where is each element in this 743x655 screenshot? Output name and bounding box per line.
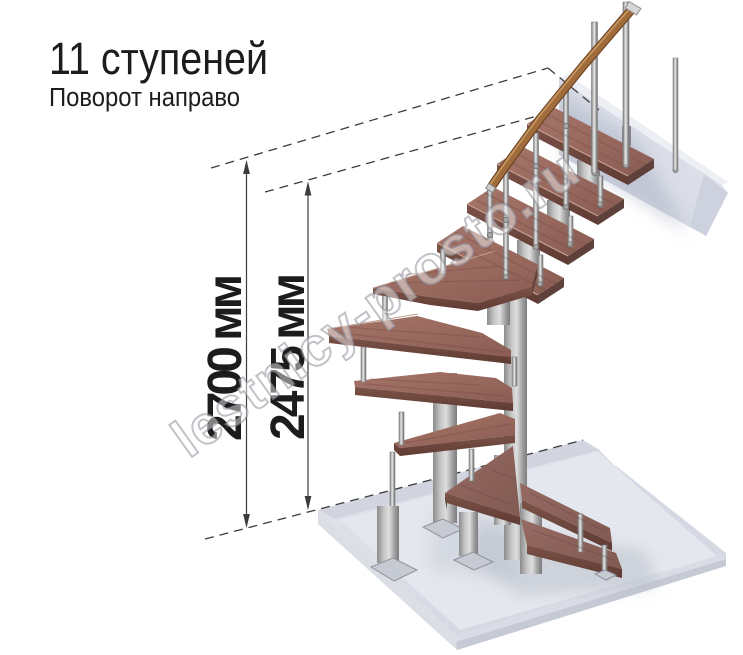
svg-text:Поворот направо: Поворот направо bbox=[49, 84, 240, 112]
svg-text:11 ступеней: 11 ступеней bbox=[49, 33, 268, 84]
